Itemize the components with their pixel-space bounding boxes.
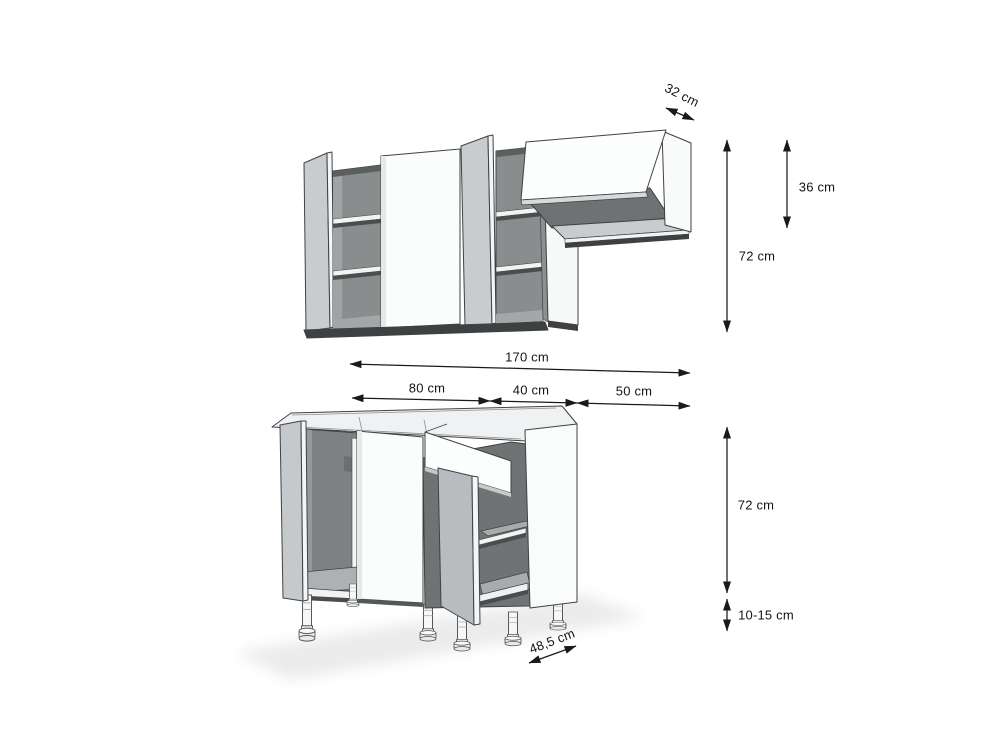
dim-label-base-height: 72 cm bbox=[738, 498, 774, 513]
dim-label-width-40: 40 cm bbox=[513, 383, 549, 398]
flap-door bbox=[521, 130, 666, 200]
base-closed-door-shade bbox=[357, 431, 362, 599]
flap-cabinet-side-panel bbox=[662, 131, 691, 232]
dim-label-upper-height: 72 cm bbox=[739, 249, 775, 264]
wall-cabinet-run bbox=[304, 130, 691, 338]
cabinet-line-drawing bbox=[0, 0, 1000, 750]
base-open-door-mid bbox=[438, 468, 474, 625]
cabinet-dimension-diagram: 32 cm 36 cm 72 cm 170 cm 80 cm 40 cm 50 … bbox=[0, 0, 1000, 750]
dim-arrow-upper-depth bbox=[666, 108, 694, 120]
dim-label-leg-height: 10-15 cm bbox=[738, 608, 794, 623]
base-open-door-left bbox=[280, 421, 303, 601]
dim-arrow-total-width bbox=[350, 364, 690, 373]
dim-label-width-80: 80 cm bbox=[409, 381, 445, 396]
dim-arrow-width-50 bbox=[577, 403, 690, 406]
dim-label-width-50: 50 cm bbox=[616, 384, 652, 399]
base-side-panel bbox=[525, 424, 577, 608]
wall-closed-door bbox=[381, 149, 460, 328]
dim-arrow-width-40 bbox=[490, 401, 577, 403]
wall-open-door-mid bbox=[461, 136, 492, 326]
wall-open-door-left bbox=[304, 153, 330, 331]
wall-closed-door-shade bbox=[381, 156, 386, 328]
wall-shelf-unit-1 bbox=[333, 165, 381, 330]
base-cabinet-run bbox=[235, 406, 645, 680]
dim-arrow-width-80 bbox=[352, 398, 490, 401]
dim-label-flap-height: 36 cm bbox=[799, 180, 835, 195]
base-closed-door bbox=[357, 431, 423, 603]
cabinet-leg bbox=[299, 595, 315, 641]
base-left-cabinet-interior bbox=[302, 429, 361, 603]
dim-label-total-width: 170 cm bbox=[505, 350, 549, 365]
